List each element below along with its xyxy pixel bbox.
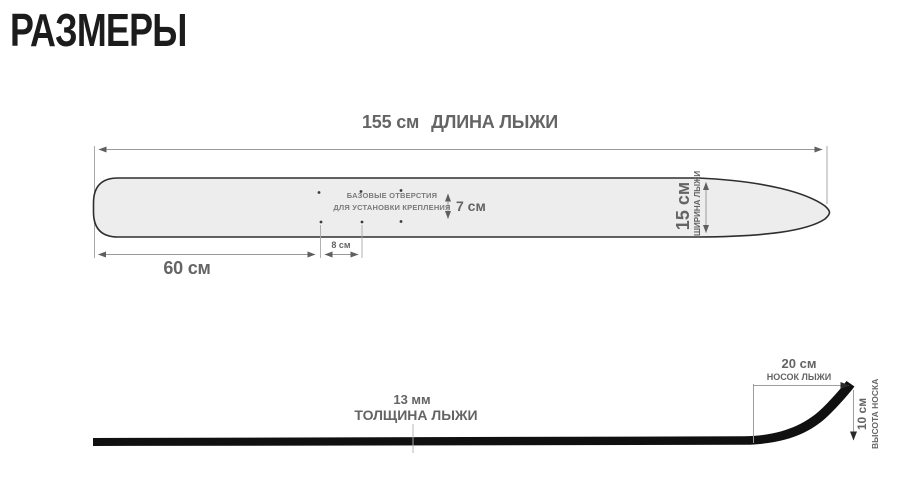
tip-length-name: НОСОК ЛЫЖИ bbox=[758, 372, 840, 382]
length-dimension-label: 155 смДЛИНА ЛЫЖИ bbox=[300, 112, 620, 133]
tail-to-binding-label: 60 см bbox=[137, 258, 237, 279]
length-name: ДЛИНА ЛЫЖИ bbox=[431, 112, 558, 132]
ski-dimensions-diagram: РАЗМЕРЫ 155 смДЛИНА ЛЫЖИ БАЗОВЫЕ ОТВЕРСТ… bbox=[0, 0, 900, 488]
holes-note-line1: БАЗОВЫЕ ОТВЕРСТИЯ bbox=[318, 190, 466, 202]
thickness-value: 13 мм bbox=[372, 392, 452, 407]
holes-note: БАЗОВЫЕ ОТВЕРСТИЯ ДЛЯ УСТАНОВКИ КРЕПЛЕНИ… bbox=[318, 190, 466, 214]
hole-spacing-horizontal-label: 8 см bbox=[317, 240, 365, 250]
thickness-name: ТОЛЩИНА ЛЫЖИ bbox=[346, 407, 486, 423]
width-value: 15 см bbox=[673, 176, 691, 236]
width-name: ШИРИНА ЛЫЖИ bbox=[693, 174, 703, 236]
tip-length-value: 20 см bbox=[759, 356, 839, 371]
tip-height-name: ВЫСОТА НОСКА bbox=[870, 379, 880, 449]
tip-height-value: 10 см bbox=[855, 389, 871, 439]
hole-spacing-vertical-label: 7 см bbox=[456, 198, 486, 214]
length-value: 155 см bbox=[362, 112, 419, 132]
holes-note-line2: ДЛЯ УСТАНОВКИ КРЕПЛЕНИЯ bbox=[318, 202, 466, 214]
page-title: РАЗМЕРЫ bbox=[10, 7, 187, 53]
